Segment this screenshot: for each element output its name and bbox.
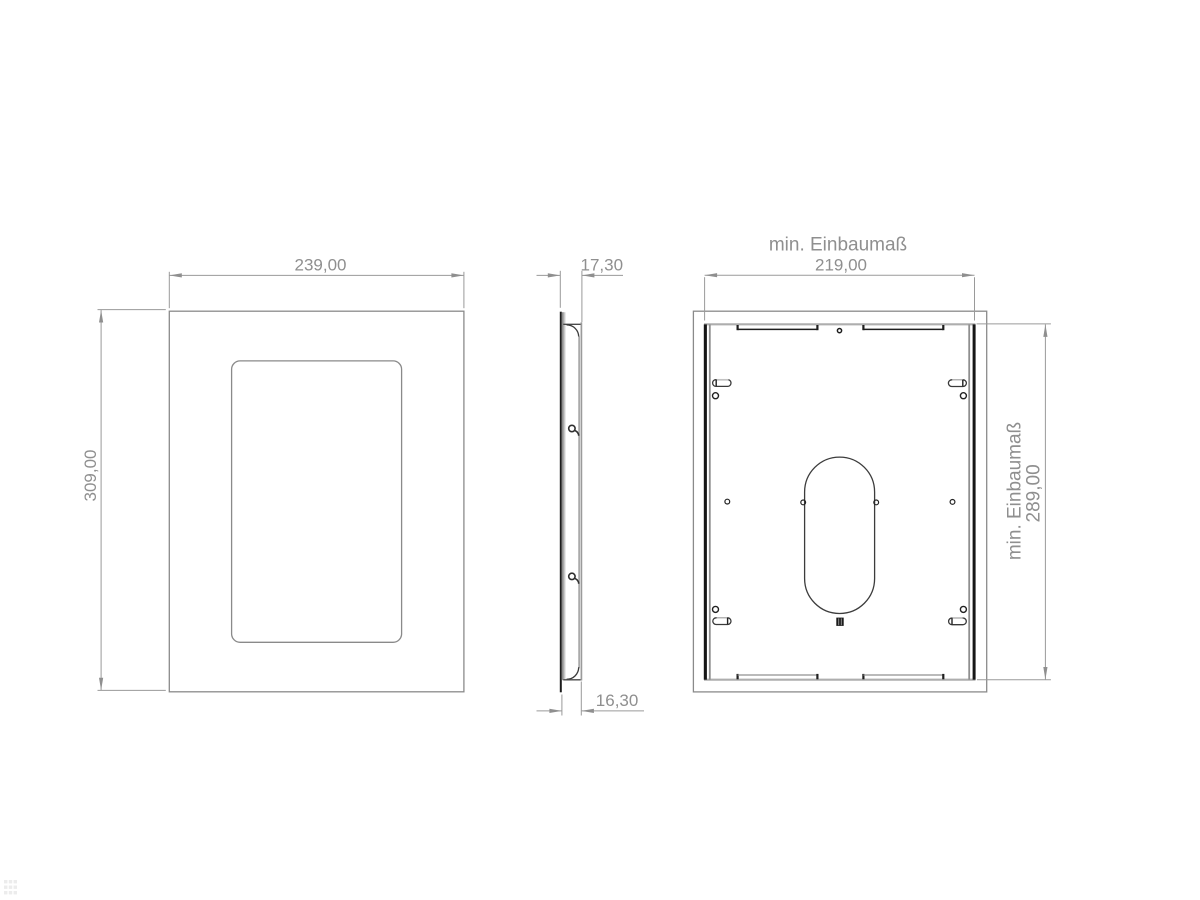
svg-text:min. Einbaumaß: min. Einbaumaß	[1005, 422, 1026, 560]
svg-text:min. Einbaumaß: min. Einbaumaß	[769, 235, 907, 256]
svg-text:309,00: 309,00	[81, 450, 100, 502]
svg-text:16,30: 16,30	[596, 691, 639, 710]
svg-text:219,00: 219,00	[815, 256, 867, 275]
svg-text:239,00: 239,00	[295, 255, 347, 274]
svg-text:17,30: 17,30	[581, 255, 624, 274]
svg-text:289,00: 289,00	[1024, 464, 1045, 522]
